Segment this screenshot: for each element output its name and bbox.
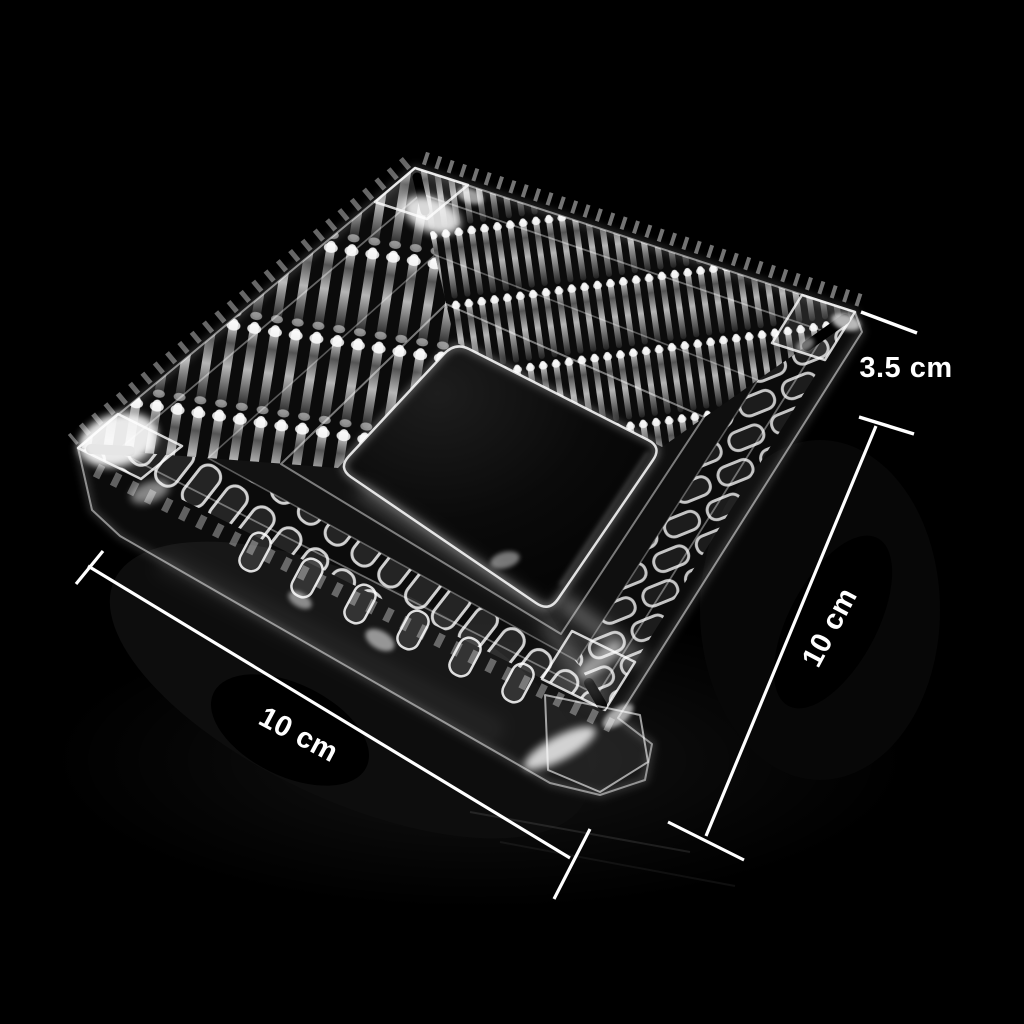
height-dimension: 3.5 cm <box>859 312 953 434</box>
height-label: 3.5 cm <box>859 352 952 384</box>
height-tick-top <box>861 312 917 333</box>
height-tick-bottom <box>859 417 914 434</box>
product-photo-stage: 3.5 cm 10 cm 10 cm <box>0 0 1024 1024</box>
ashtray-product-photo: 3.5 cm 10 cm 10 cm <box>0 0 1024 1024</box>
